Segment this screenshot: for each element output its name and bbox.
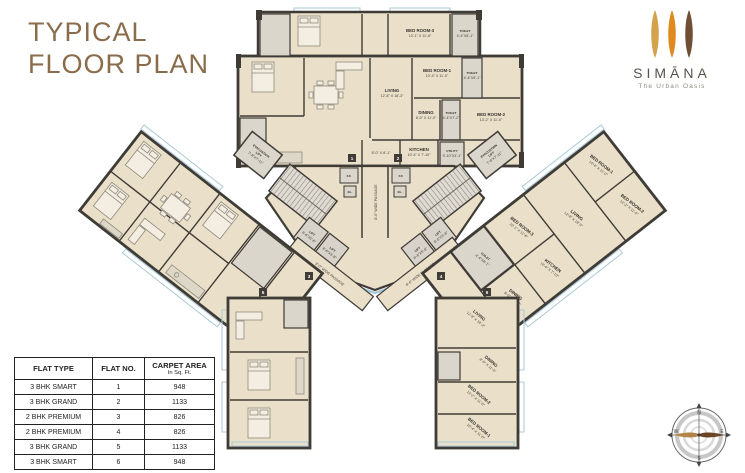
- wardrobe: [296, 358, 304, 394]
- table-row: 3 BHK SMART6948: [15, 455, 215, 470]
- bed-icon: [298, 16, 320, 46]
- column: [256, 10, 262, 20]
- room-label: TOILET: [460, 29, 471, 33]
- col-carpet-area-sub: In Sq. Ft.: [151, 370, 208, 376]
- room-dim: 13'-2" X 11'-0": [480, 118, 503, 122]
- svg-text:4: 4: [440, 274, 443, 279]
- window-strip: [519, 382, 524, 432]
- table-row: 2 BHK PREMIUM4826: [15, 425, 215, 440]
- room-label: LIVING: [385, 88, 400, 93]
- bottom-left-arm: [222, 298, 310, 448]
- flat-tag-2: 2: [394, 154, 402, 162]
- page: TYPICAL FLOOR PLAN SIMĀNA The Urban Oasi…: [0, 0, 745, 473]
- svg-text:1: 1: [351, 156, 354, 161]
- room-dim: 10'-1" X 11'-6": [409, 34, 432, 38]
- compass-e: E: [720, 429, 724, 435]
- upper-tier: [258, 12, 480, 58]
- bed-icon: [252, 62, 274, 92]
- room-dim: 10'-4" X 11'-0": [426, 74, 449, 78]
- foyer-dim: 8'-0" X 8'-1": [372, 151, 391, 155]
- toilet-room: [442, 100, 460, 140]
- duct-label: F.F.: [347, 174, 352, 178]
- room-dim: 4'-4"X7'-2": [443, 116, 460, 120]
- col-flat-no: FLAT NO.: [93, 358, 145, 380]
- bed-icon: [248, 408, 270, 438]
- flat-tag-6: 6: [483, 288, 491, 296]
- room-label: TOILET: [467, 71, 478, 75]
- flat-area-table: FLAT TYPE FLAT NO. CARPET AREA In Sq. Ft…: [14, 357, 215, 470]
- flat-tag-3: 3: [305, 272, 313, 280]
- compass-w: W: [674, 429, 679, 435]
- room-label: BED ROOM-3: [406, 28, 435, 33]
- passage-label: 8'-0" WIDE PASSAGE: [374, 184, 378, 220]
- room-label: BED ROOM-2: [477, 112, 506, 117]
- room-dim: 5'-10"X3'-1": [443, 154, 462, 158]
- svg-text:3: 3: [308, 274, 311, 279]
- toilet-room: [284, 300, 308, 328]
- compass-rose-icon: N S W E: [666, 402, 732, 468]
- col-flat-type: FLAT TYPE: [15, 358, 93, 380]
- window-strip: [222, 382, 227, 432]
- bottom-right-arm: LIVING12'-8" X 18'-3" DINING8'-0" X 11'-…: [436, 298, 524, 448]
- room-dim: 12'-8" X 18'-3": [381, 94, 404, 98]
- room-dim: 8'-0" X 11'-0": [416, 116, 437, 120]
- bed-icon: [248, 360, 270, 390]
- duct-label: EL.: [398, 190, 403, 194]
- column: [519, 152, 524, 168]
- room-label: TOILET: [446, 111, 457, 115]
- toilet-room: [438, 352, 460, 380]
- column: [236, 54, 241, 68]
- room-dim: 4'-4"X8'-1": [464, 76, 481, 80]
- room-label: DINING: [418, 110, 434, 115]
- room-label: UTILITY: [446, 149, 459, 153]
- room-dim: 4'-4"X8'-1": [457, 34, 474, 38]
- room-dim: 10'-4" X 7'-10": [408, 153, 431, 157]
- column: [476, 10, 482, 20]
- duct-label: F.F.: [399, 174, 404, 178]
- table-row: 3 BHK GRAND51133: [15, 440, 215, 455]
- svg-text:5: 5: [262, 290, 265, 295]
- table-row: 3 BHK GRAND21133: [15, 395, 215, 410]
- bath-room: [260, 14, 290, 56]
- column: [519, 54, 524, 68]
- table-row: 3 BHK SMART1948: [15, 380, 215, 395]
- compass-n: N: [697, 410, 701, 416]
- flat-tag-4: 4: [437, 272, 445, 280]
- svg-text:2: 2: [397, 156, 400, 161]
- svg-text:6: 6: [486, 290, 489, 295]
- room-label: KITCHEN: [409, 147, 429, 152]
- room-label: BED ROOM-1: [423, 68, 452, 73]
- duct-label: EL.: [348, 190, 353, 194]
- flat-tag-5: 5: [259, 288, 267, 296]
- flat-tag-1: 1: [348, 154, 356, 162]
- col-carpet-area: CARPET AREA In Sq. Ft.: [145, 358, 215, 380]
- table-row: 2 BHK PREMIUM3826: [15, 410, 215, 425]
